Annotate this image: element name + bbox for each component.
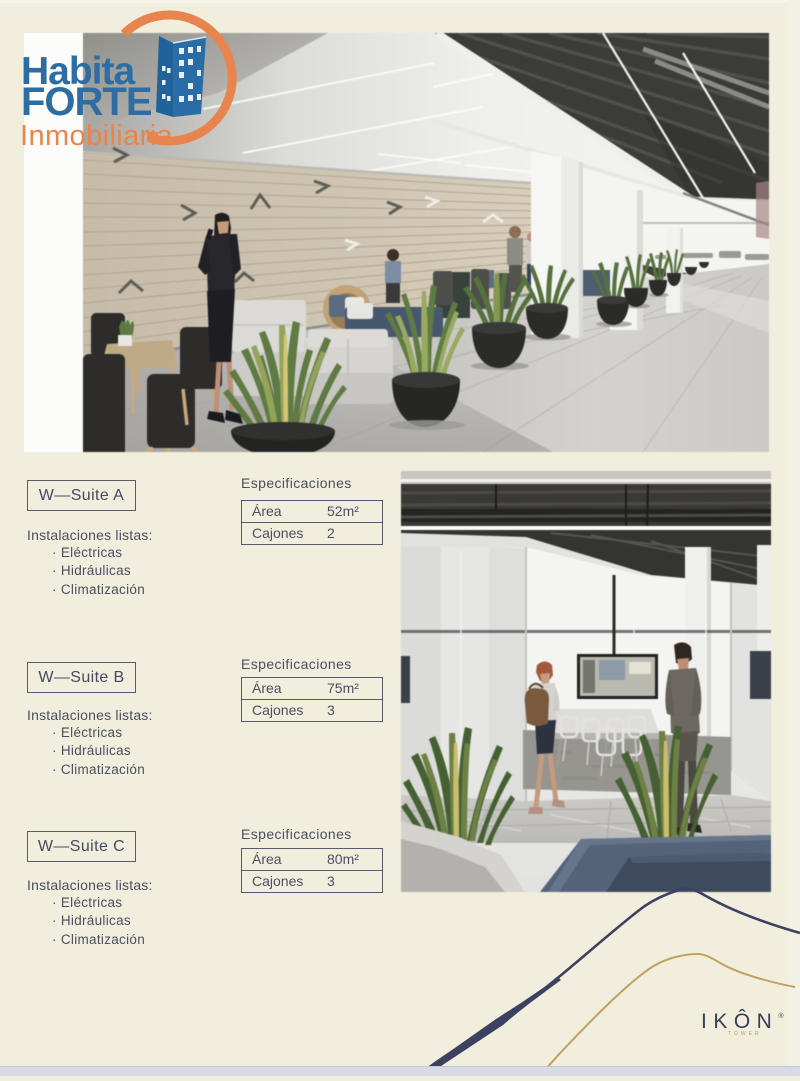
svg-text:Inmobiliaria: Inmobiliaria	[20, 120, 174, 152]
svg-text:FORTE: FORTE	[21, 80, 152, 124]
